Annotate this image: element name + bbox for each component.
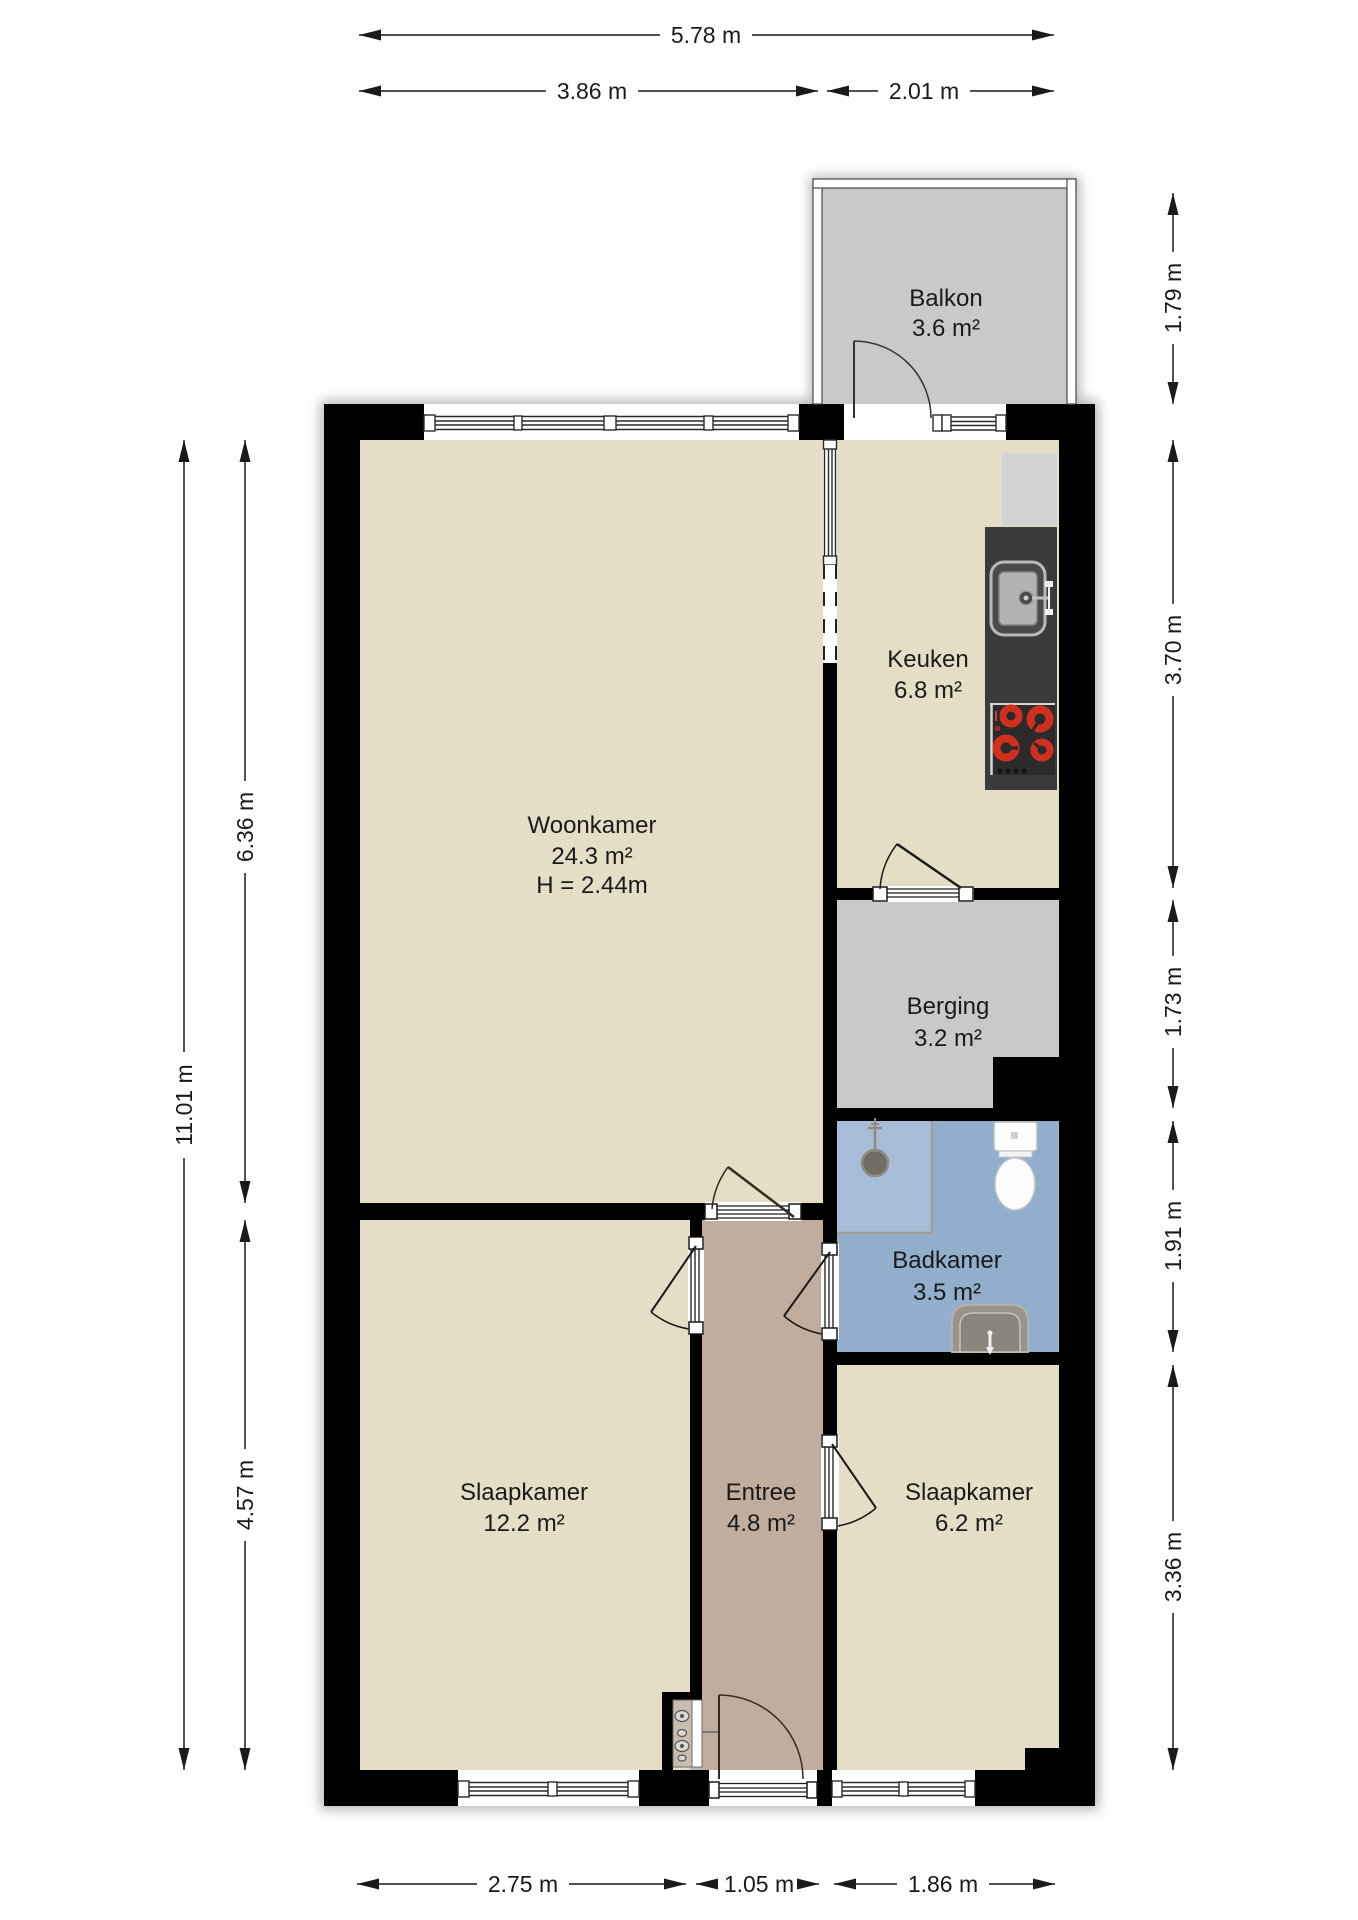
svg-text:11.01 m: 11.01 m	[171, 1064, 197, 1145]
svg-text:3.5 m²: 3.5 m²	[913, 1279, 981, 1306]
svg-text:Balkon: Balkon	[909, 285, 982, 312]
svg-text:Woonkamer: Woonkamer	[528, 812, 657, 839]
svg-text:1.91 m: 1.91 m	[1160, 1201, 1186, 1271]
svg-text:2.75 m: 2.75 m	[488, 1871, 558, 1897]
svg-text:4.8 m²: 4.8 m²	[727, 1510, 795, 1537]
svg-text:6.36 m: 6.36 m	[232, 792, 258, 862]
svg-text:Badkamer: Badkamer	[892, 1247, 1001, 1274]
svg-text:4.57 m: 4.57 m	[232, 1460, 258, 1530]
svg-text:Berging: Berging	[907, 993, 990, 1020]
svg-text:3.6 m²: 3.6 m²	[912, 315, 980, 342]
svg-text:1.86 m: 1.86 m	[908, 1871, 978, 1897]
svg-text:6.8 m²: 6.8 m²	[894, 677, 962, 704]
svg-text:1.05 m: 1.05 m	[724, 1871, 794, 1897]
svg-text:Keuken: Keuken	[887, 646, 968, 673]
svg-text:2.01 m: 2.01 m	[889, 78, 959, 104]
svg-text:3.70 m: 3.70 m	[1160, 615, 1186, 685]
svg-text:Slaapkamer: Slaapkamer	[460, 1479, 588, 1506]
svg-text:H = 2.44m: H = 2.44m	[536, 872, 647, 899]
svg-text:12.2 m²: 12.2 m²	[483, 1510, 564, 1537]
svg-text:1.79 m: 1.79 m	[1160, 263, 1186, 333]
svg-text:1.73 m: 1.73 m	[1160, 967, 1186, 1037]
svg-text:Entree: Entree	[726, 1479, 797, 1506]
svg-text:6.2 m²: 6.2 m²	[935, 1510, 1003, 1537]
svg-text:3.36 m: 3.36 m	[1160, 1532, 1186, 1602]
svg-text:Slaapkamer: Slaapkamer	[905, 1479, 1033, 1506]
svg-text:3.2 m²: 3.2 m²	[914, 1025, 982, 1052]
svg-text:24.3 m²: 24.3 m²	[551, 843, 632, 870]
svg-text:3.86 m: 3.86 m	[557, 78, 627, 104]
svg-text:5.78 m: 5.78 m	[671, 22, 741, 48]
